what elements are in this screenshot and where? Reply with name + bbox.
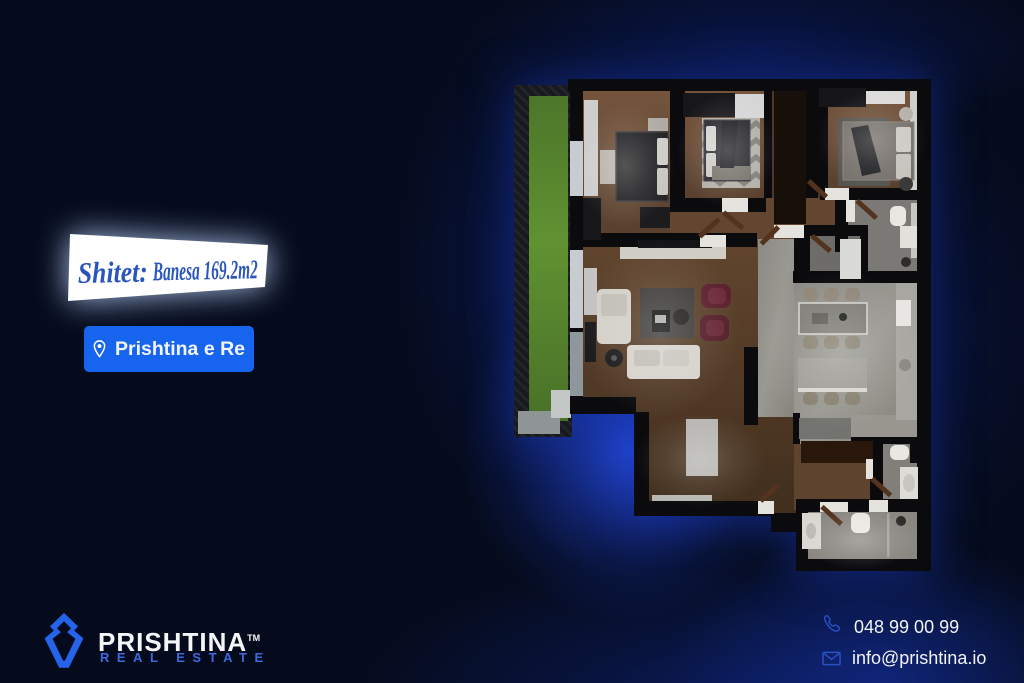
svg-text:Banesa 169.2m2: Banesa 169.2m2	[152, 254, 258, 286]
svg-text:Shitet:: Shitet:	[77, 256, 148, 290]
